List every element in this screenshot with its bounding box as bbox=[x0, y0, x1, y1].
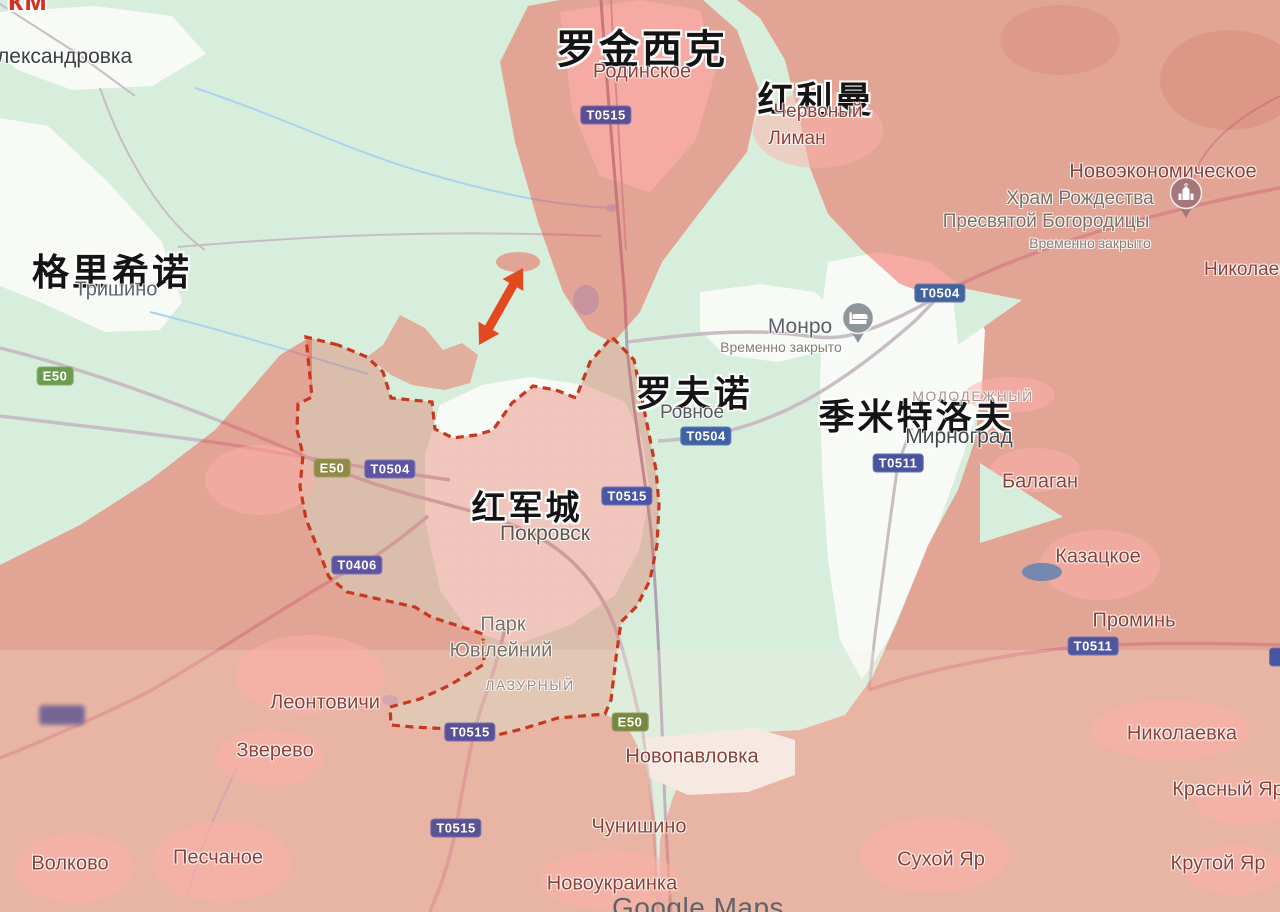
t0406-southwest: Т0406 bbox=[331, 556, 382, 575]
road-badge-partial bbox=[1269, 648, 1280, 667]
lodging-poi-pin[interactable] bbox=[840, 301, 876, 350]
distance-annotation: 1.5 км bbox=[0, 0, 48, 18]
t0511-southeast: Т0511 bbox=[1068, 637, 1119, 656]
t0504-northeast: Т0504 bbox=[914, 284, 965, 303]
annotated-war-map: 罗金西克红利曼格里希诺罗夫诺季米特洛夫红军城АлександровкаТриши… bbox=[0, 0, 1280, 912]
t0504-rovne: Т0504 bbox=[680, 427, 731, 446]
lake-kazatskoe bbox=[1022, 563, 1062, 581]
e50-southeast: Е50 bbox=[612, 713, 649, 732]
e50-west: Е50 bbox=[37, 367, 74, 386]
urban-monro bbox=[700, 284, 838, 362]
overlay-wedge-tip bbox=[496, 252, 540, 272]
t0511-mirnograd: Т0511 bbox=[873, 454, 924, 473]
church-icon bbox=[1168, 176, 1204, 220]
lodging-icon bbox=[840, 301, 876, 345]
road-badge-blurred bbox=[39, 705, 85, 725]
t0515-south: Т0515 bbox=[444, 723, 495, 742]
t0504-pokrovsk: Т0504 bbox=[364, 460, 415, 479]
map-geometry bbox=[0, 0, 1280, 912]
e50-pokrovsk: Е50 bbox=[314, 459, 351, 478]
church-poi-pin[interactable] bbox=[1168, 176, 1204, 225]
texture-dark-2 bbox=[1000, 5, 1120, 75]
google-maps-logo[interactable]: Google Maps bbox=[612, 892, 784, 912]
t0515-far-south: Т0515 bbox=[430, 819, 481, 838]
t0515-north: Т0515 bbox=[580, 106, 631, 125]
t0515-pokrovsk-east: Т0515 bbox=[601, 487, 652, 506]
